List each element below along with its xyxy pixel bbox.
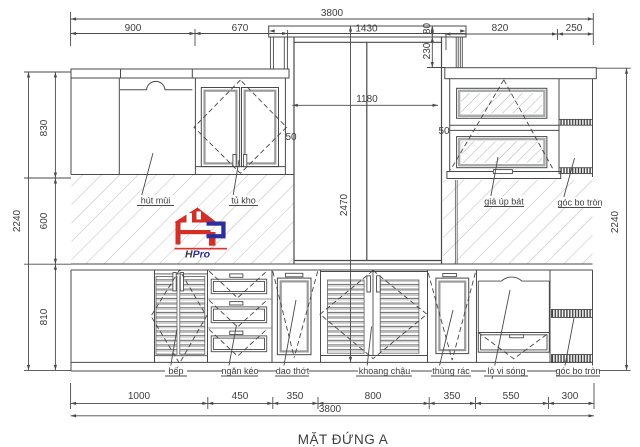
svg-text:góc bo tròn: góc bo tròn xyxy=(555,366,600,376)
svg-text:820: 820 xyxy=(492,23,509,34)
svg-text:450: 450 xyxy=(232,391,249,402)
svg-text:tủ kho: tủ kho xyxy=(231,196,256,206)
svg-text:2240: 2240 xyxy=(12,209,23,232)
svg-text:670: 670 xyxy=(232,23,249,34)
svg-text:1430: 1430 xyxy=(355,24,378,35)
svg-text:ngăn kéo: ngăn kéo xyxy=(221,366,258,376)
svg-text:khoang chậu: khoang chậu xyxy=(359,366,411,376)
svg-text:hút mùi: hút mùi xyxy=(141,196,171,206)
svg-text:250: 250 xyxy=(566,23,583,34)
svg-text:góc bo tròn: góc bo tròn xyxy=(557,198,602,208)
svg-text:lò vi sóng: lò vi sóng xyxy=(487,366,525,376)
svg-text:550: 550 xyxy=(503,391,520,402)
svg-text:3800: 3800 xyxy=(319,404,342,415)
svg-text:dao thớt: dao thớt xyxy=(276,366,310,376)
svg-text:3800: 3800 xyxy=(321,8,344,19)
svg-text:230: 230 xyxy=(422,42,433,59)
svg-text:1180: 1180 xyxy=(356,94,378,105)
svg-text:810: 810 xyxy=(39,308,50,325)
svg-text:350: 350 xyxy=(287,391,304,402)
svg-text:300: 300 xyxy=(562,391,579,402)
svg-text:MẶT ĐỨNG A: MẶT ĐỨNG A xyxy=(298,432,389,447)
svg-text:80: 80 xyxy=(422,23,433,35)
svg-text:800: 800 xyxy=(365,391,382,402)
svg-text:HPro: HPro xyxy=(185,249,211,261)
svg-text:350: 350 xyxy=(444,391,461,402)
svg-text:50: 50 xyxy=(285,132,297,143)
svg-text:50: 50 xyxy=(438,126,450,137)
svg-text:600: 600 xyxy=(39,212,50,229)
svg-text:giá úp bát: giá úp bát xyxy=(484,197,524,207)
svg-text:2240: 2240 xyxy=(610,210,621,233)
svg-text:1000: 1000 xyxy=(128,391,151,402)
svg-text:830: 830 xyxy=(39,119,50,136)
svg-text:2470: 2470 xyxy=(339,193,350,216)
svg-text:900: 900 xyxy=(125,23,142,34)
svg-text:bếp: bếp xyxy=(168,366,183,376)
svg-text:thùng rác: thùng rác xyxy=(432,366,470,376)
